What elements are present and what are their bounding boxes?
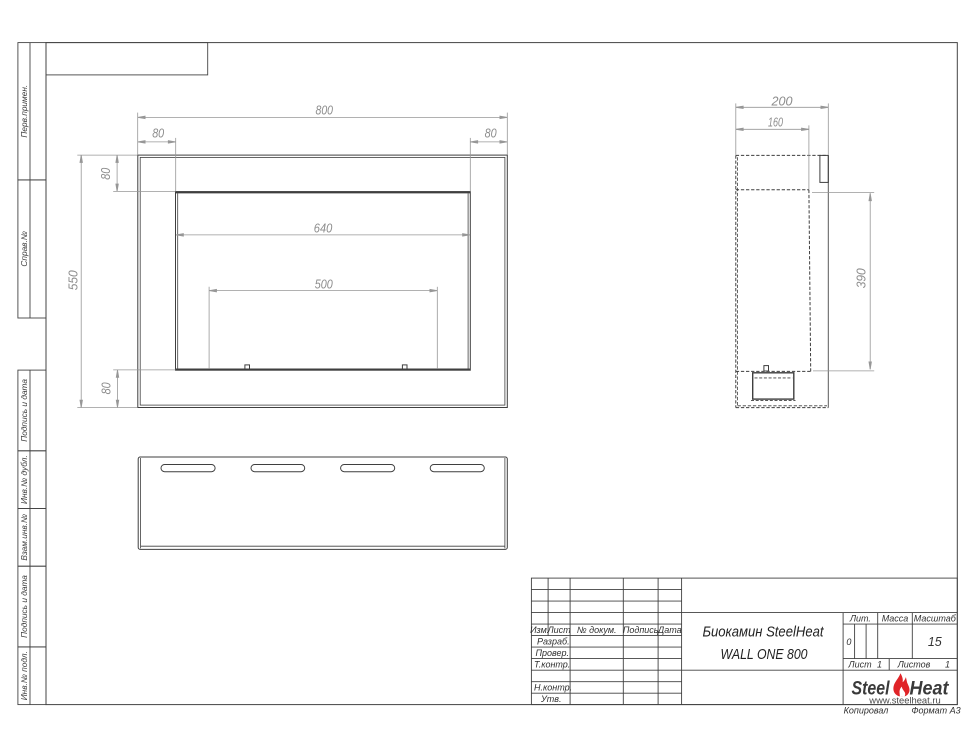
svg-text:Взам.инв.№: Взам.инв.№ [19, 514, 29, 561]
svg-text:Копировал: Копировал [844, 706, 889, 716]
svg-text:Подпись и дата: Подпись и дата [19, 379, 29, 442]
svg-text:0: 0 [846, 637, 851, 647]
svg-text:Дата: Дата [657, 625, 682, 635]
svg-text:390: 390 [853, 268, 868, 289]
svg-text:80: 80 [152, 126, 165, 141]
svg-text:Подпись: Подпись [623, 625, 659, 635]
svg-text:Лист: Лист [547, 625, 572, 635]
svg-text:Перв.примен.: Перв.примен. [19, 85, 29, 138]
svg-text:1: 1 [945, 660, 950, 670]
svg-text:Лит.: Лит. [849, 614, 871, 624]
svg-text:1: 1 [877, 660, 882, 670]
svg-text:640: 640 [314, 221, 333, 236]
svg-text:160: 160 [768, 114, 784, 129]
svg-text:200: 200 [771, 93, 794, 108]
svg-text:Формат А3: Формат А3 [911, 706, 960, 716]
svg-text:Инв.№ дубл.: Инв.№ дубл. [19, 455, 29, 504]
svg-text:Разраб.: Разраб. [537, 637, 570, 647]
svg-text:15: 15 [928, 635, 942, 649]
svg-text:Утв.: Утв. [540, 694, 561, 704]
svg-text:Лист: Лист [847, 660, 872, 670]
svg-text:WALL ONE 800: WALL ONE 800 [721, 647, 808, 663]
svg-text:80: 80 [485, 126, 498, 141]
svg-text:Листов: Листов [897, 660, 931, 670]
svg-text:Инв.№ подл.: Инв.№ подл. [19, 651, 29, 700]
svg-text:550: 550 [66, 270, 81, 291]
svg-text:Справ.№: Справ.№ [19, 231, 29, 266]
svg-text:Подпись и дата: Подпись и дата [19, 575, 29, 638]
svg-text:Провер.: Провер. [536, 648, 570, 658]
svg-text:800: 800 [316, 103, 334, 118]
svg-text:Масса: Масса [882, 614, 909, 624]
svg-text:500: 500 [315, 276, 334, 291]
svg-text:Т.контр.: Т.контр. [534, 660, 570, 670]
svg-text:www.steelheat.ru: www.steelheat.ru [868, 695, 940, 706]
svg-text:Н.контр.: Н.контр. [534, 683, 572, 693]
svg-text:Масштаб: Масштаб [914, 614, 957, 624]
svg-text:80: 80 [98, 382, 113, 395]
svg-text:Биокамин SteelHeat: Биокамин SteelHeat [703, 624, 825, 640]
svg-text:80: 80 [98, 167, 113, 180]
svg-text:Изм.: Изм. [530, 625, 549, 635]
svg-text:№ докум.: № докум. [577, 625, 617, 635]
